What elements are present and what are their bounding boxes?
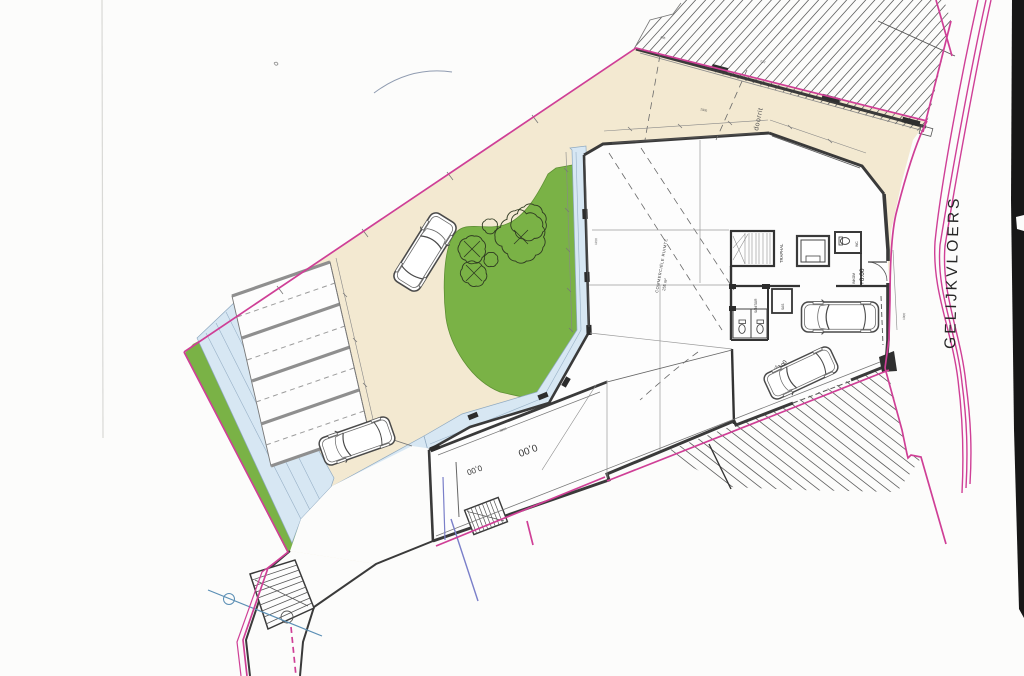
svg-text:SANITAIR: SANITAIR bbox=[754, 298, 758, 313]
svg-text:INKOM: INKOM bbox=[852, 273, 856, 284]
svg-text:SAS: SAS bbox=[781, 304, 785, 310]
svg-text:1000: 1000 bbox=[902, 313, 906, 320]
svg-text:1150: 1150 bbox=[594, 238, 598, 245]
svg-text:TRAPHAL: TRAPHAL bbox=[779, 243, 784, 263]
svg-text:+0.00: +0.00 bbox=[859, 268, 866, 285]
svg-text:WC: WC bbox=[855, 241, 859, 247]
